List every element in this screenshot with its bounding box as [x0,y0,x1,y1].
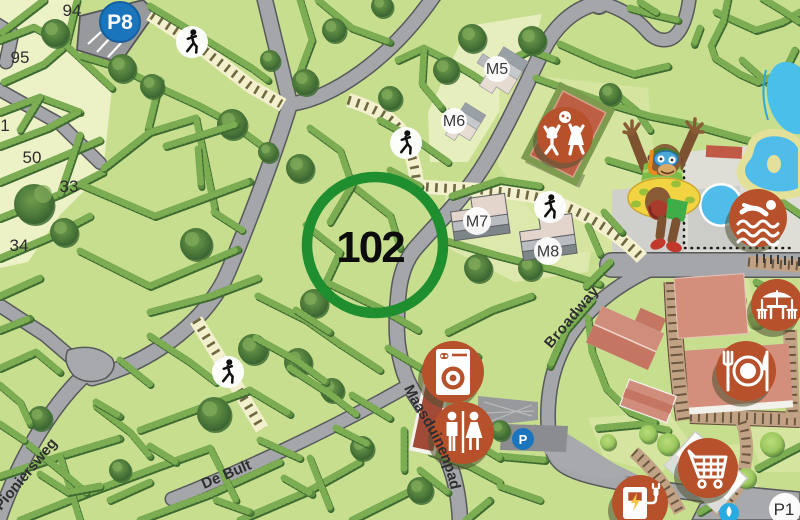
svg-text:102: 102 [336,223,404,272]
svg-text:1: 1 [0,116,9,135]
svg-text:P: P [519,432,528,447]
svg-text:M8: M8 [537,244,559,261]
svg-text:94: 94 [63,1,82,20]
svg-text:M6: M6 [443,113,465,130]
svg-text:50: 50 [23,148,42,167]
svg-text:95: 95 [11,48,30,67]
svg-text:P1: P1 [774,500,795,519]
svg-text:P8: P8 [107,11,133,34]
svg-text:34: 34 [10,236,29,255]
svg-text:M5: M5 [486,61,508,78]
svg-text:M7: M7 [466,214,488,231]
svg-text:33: 33 [60,177,79,196]
